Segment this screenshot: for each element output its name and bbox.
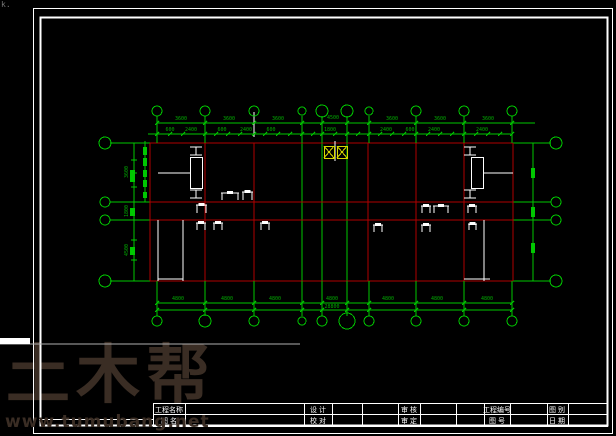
watermark-bar [0,338,30,344]
door-symbol [262,221,268,224]
door-symbol [199,203,205,206]
watermark-url: www.tumubang.net [5,412,210,432]
window-symbol [143,158,147,166]
axis-circle [249,316,259,326]
titleblock-label: 设 计 [310,405,326,414]
dimension-label: 3600 [124,166,130,178]
dimension-label: 3600 [223,116,235,122]
window-symbol [143,180,147,187]
corner-mark: k. [1,0,11,9]
window-symbol [531,207,535,217]
axis-circle [99,137,111,149]
axis-circle [100,215,110,225]
frame-inner [41,18,608,426]
door-symbol [423,223,429,226]
window-symbol [143,192,147,198]
stair-symbol [472,158,484,189]
table-symbol [438,204,444,207]
axis-circle [551,215,561,225]
dimension-label: 2400 [240,127,252,133]
titleblock-label: 审 定 [401,416,417,425]
dimension-label: 600 [405,127,414,133]
axis-circle [99,275,111,287]
axis-circle [152,106,162,116]
dimension-label: 4500 [327,115,339,121]
table-symbol [227,191,233,194]
dimension-label: 3600 [386,116,398,122]
axis-circle [550,275,562,287]
dimension-label: 600 [165,127,174,133]
drawing-canvas[interactable]: 3600360036004500360036003600600240060024… [0,0,616,436]
titleblock-label: 日 期 [549,417,565,425]
titleblock-label: 审 核 [401,405,417,414]
axis-circle [411,316,421,326]
dimension-label: 2400 [185,127,197,133]
dimension-label: 4800 [172,296,184,302]
dimension-label: 4500 [124,244,130,256]
dimension-label: 2400 [428,127,440,133]
dimension-label: 1800 [124,205,130,217]
dimension-label: 4800 [382,296,394,302]
axis-circle [100,197,110,207]
dimension-label: 1800 [324,127,336,133]
door-symbol [245,190,251,193]
axis-circle [507,106,517,116]
dimension-label: 4800 [431,296,443,302]
door-symbol [469,204,475,207]
axis-circle [551,197,561,207]
door-symbol [423,204,429,207]
axis-circle [199,315,211,327]
window-symbol [531,243,535,253]
dimension-label: 28800 [324,304,339,310]
dimension-label: 600 [217,127,226,133]
window-symbol [143,147,147,155]
axis-circle [298,107,306,115]
dimension-label: 3600 [434,116,446,122]
axis-circle [341,105,353,117]
titleblock-label: 校 对 [310,416,326,425]
frame-outer [34,9,613,434]
titleblock-label: 图 别 [549,405,565,414]
door-symbol [215,221,221,224]
window-symbol [130,208,135,216]
axis-circle [411,106,421,116]
axis-circle [507,316,517,326]
axis-circle [317,316,327,326]
dimension-label: 600 [266,127,275,133]
dimension-label: 3600 [175,116,187,122]
axis-circle [459,316,469,326]
axis-circle [365,107,373,115]
axis-circle [152,316,162,326]
dimension-label: 2400 [476,127,488,133]
titleblock-label: 图 号 [489,417,505,425]
dimension-label: 3600 [272,116,284,122]
cad-application-window: k. 土木帮 360036003600450036003600360060024… [0,0,616,436]
dimension-label: 4800 [481,296,493,302]
door-symbol [470,222,476,225]
dimension-label: 2400 [380,127,392,133]
dimension-label: 4800 [269,296,281,302]
window-symbol [531,168,535,178]
window-symbol [143,170,147,177]
axis-circle [364,316,374,326]
dimension-label: 3600 [482,116,494,122]
door-symbol [198,221,204,224]
axis-circle [298,317,306,325]
dimension-label: 4800 [326,296,338,302]
stair-symbol [191,158,203,189]
axis-circle [200,106,210,116]
titleblock-label: 工程编号 [483,405,511,414]
dimension-label: 4800 [221,296,233,302]
window-symbol [130,247,135,255]
door-symbol [375,223,381,226]
window-symbol [130,170,135,182]
axis-circle [550,137,562,149]
axis-circle [459,106,469,116]
